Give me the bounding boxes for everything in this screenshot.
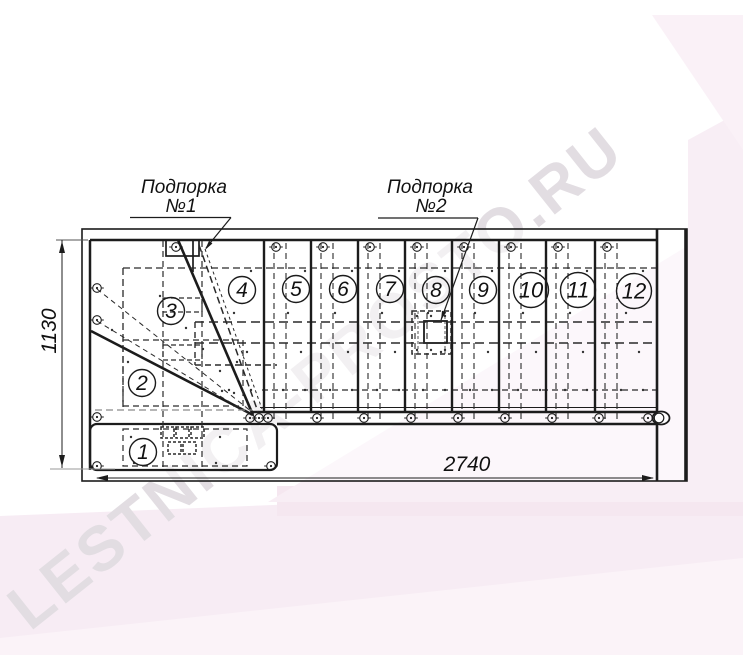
screw-dot — [427, 312, 429, 314]
screw-dot — [394, 351, 396, 353]
screw-dot — [416, 349, 418, 351]
screw-dot — [487, 351, 489, 353]
bg-right-band — [688, 110, 743, 500]
screw-dot — [304, 389, 306, 391]
screw-dot — [398, 389, 400, 391]
step-number: 4 — [236, 279, 248, 302]
screw-dot — [535, 351, 537, 353]
screw-dot — [474, 312, 476, 314]
fastener-center-dot — [647, 417, 649, 419]
screw-dot — [287, 312, 289, 314]
screw-dot — [491, 389, 493, 391]
screw-dot — [539, 389, 541, 391]
screw-dot — [522, 312, 524, 314]
fastener-center-dot — [322, 246, 324, 248]
fastener-center-dot — [96, 287, 98, 289]
screw-dot — [469, 389, 471, 391]
screw-dot — [642, 270, 644, 272]
step-number: 12 — [622, 278, 646, 303]
screw-dot — [444, 349, 446, 351]
screw-dot — [620, 389, 622, 391]
screw-dot — [236, 361, 238, 363]
screw-dot — [444, 270, 446, 272]
screw-dot — [539, 270, 541, 272]
fastener-center-dot — [510, 246, 512, 248]
screw-dot — [351, 389, 353, 391]
screw-dot — [440, 351, 442, 353]
fastener-center-dot — [416, 246, 418, 248]
screw-dot — [219, 370, 221, 372]
screw-dot — [398, 270, 400, 272]
screw-dot — [159, 295, 161, 297]
fastener-center-dot — [275, 246, 277, 248]
step-number: 1 — [137, 441, 149, 464]
fastener-center-dot — [316, 417, 318, 419]
screw-dot — [282, 389, 284, 391]
screw-dot — [430, 315, 432, 317]
support1-label: Подпорка — [141, 177, 227, 198]
fastener-center-dot — [551, 417, 553, 419]
screw-dot — [376, 389, 378, 391]
fastener-center-dot — [96, 465, 98, 467]
support2-label: Подпорка — [387, 177, 473, 198]
fastener-center-dot — [258, 417, 260, 419]
screw-dot — [625, 312, 627, 314]
screw-dot — [111, 329, 113, 331]
step-number: 8 — [430, 279, 442, 302]
screw-dot — [586, 270, 588, 272]
fastener-center-dot — [363, 417, 365, 419]
staircase-plan-drawing: LESTNICA-PROSTO.RU — [0, 0, 743, 655]
dim-arrow-down — [59, 455, 65, 467]
screw-dot — [444, 389, 446, 391]
drawing-canvas: LESTNICA-PROSTO.RU — [0, 0, 743, 655]
screw-dot — [250, 270, 252, 272]
screw-dot — [582, 351, 584, 353]
fastener-center-dot — [598, 417, 600, 419]
fastener-center-dot — [270, 465, 272, 467]
fastener-center-dot — [463, 246, 465, 248]
screw-dot — [233, 312, 235, 314]
step-number: 9 — [477, 279, 489, 302]
support1-number: №1 — [165, 196, 196, 217]
fastener-center-dot — [606, 246, 608, 248]
screw-dot — [347, 351, 349, 353]
fastener-center-dot — [369, 246, 371, 248]
dim-arrow-up — [59, 241, 65, 253]
fastener-center-dot — [175, 246, 177, 248]
screw-dot — [202, 348, 204, 350]
screw-dot — [564, 389, 566, 391]
fastener-center-dot — [96, 416, 98, 418]
screw-dot — [351, 270, 353, 272]
horizontal-dimension-value: 2740 — [443, 453, 491, 476]
screw-dot — [246, 351, 248, 353]
fastener-center-dot — [410, 417, 412, 419]
screw-dot — [329, 389, 331, 391]
screw-dot — [233, 392, 235, 394]
fastener-center-dot — [457, 417, 459, 419]
fastener-center-dot — [267, 417, 269, 419]
screw-dot — [638, 351, 640, 353]
screw-dot — [642, 389, 644, 391]
step-number: 11 — [567, 277, 590, 302]
support2-number: №2 — [415, 196, 447, 217]
screw-dot — [569, 312, 571, 314]
step-number: 7 — [384, 278, 397, 301]
screw-dot — [586, 389, 588, 391]
screw-dot — [130, 436, 132, 438]
step-number: 3 — [165, 300, 177, 323]
screw-dot — [215, 462, 217, 464]
screw-dot — [381, 312, 383, 314]
screw-dot — [228, 389, 230, 391]
screw-dot — [219, 436, 221, 438]
screw-dot — [127, 361, 129, 363]
screw-dot — [221, 390, 223, 392]
screw-dot — [517, 389, 519, 391]
screw-dot — [300, 351, 302, 353]
screw-dot — [491, 270, 493, 272]
screw-dot — [416, 315, 418, 317]
fastener-center-dot — [557, 246, 559, 248]
step-number: 6 — [337, 278, 349, 301]
screw-dot — [185, 327, 187, 329]
fastener-center-dot — [504, 417, 506, 419]
step-number: 10 — [519, 277, 544, 302]
step-number: 2 — [135, 372, 148, 395]
fastener-center-dot — [96, 319, 98, 321]
fastener-center-dot — [249, 417, 251, 419]
screw-dot — [334, 312, 336, 314]
screw-dot — [422, 389, 424, 391]
vertical-dimension-value: 1130 — [38, 308, 61, 353]
step-number: 5 — [290, 278, 302, 301]
screw-dot — [250, 389, 252, 391]
screw-dot — [430, 349, 432, 351]
screw-dot — [304, 270, 306, 272]
drawing-paper — [82, 229, 687, 481]
